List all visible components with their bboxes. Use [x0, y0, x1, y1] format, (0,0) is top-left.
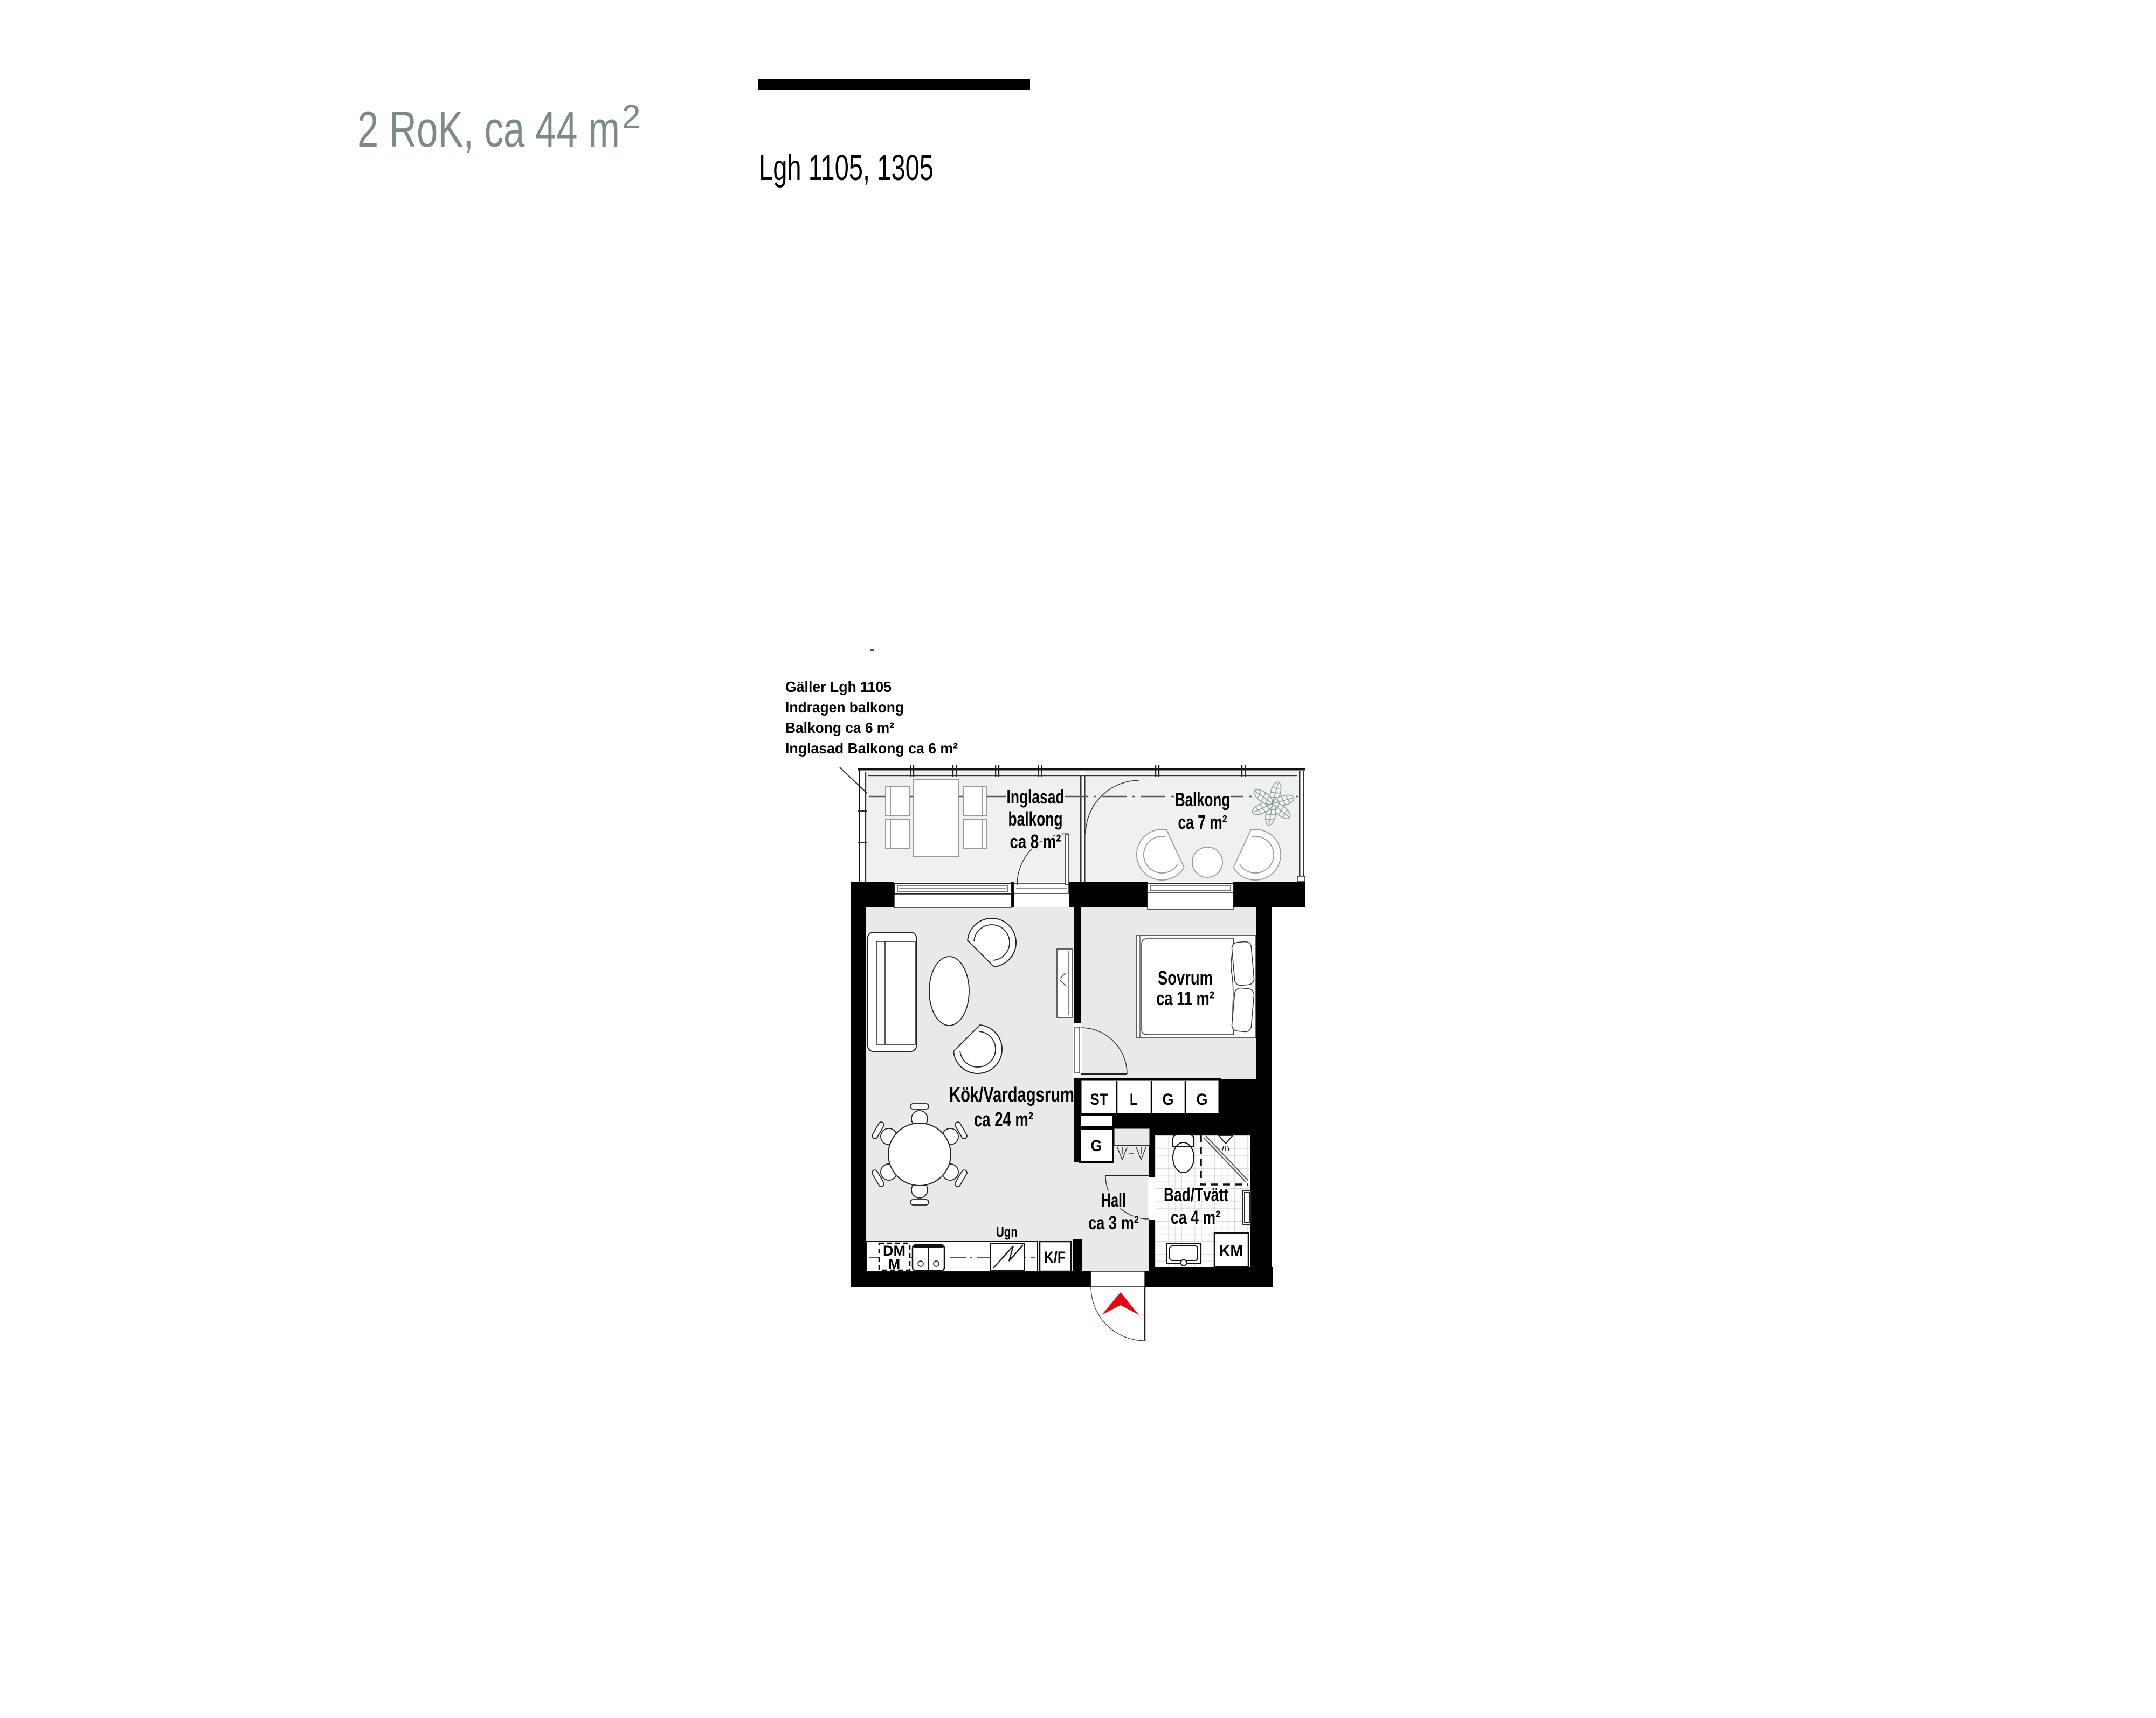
svg-text:Balkong: Balkong — [1175, 788, 1230, 810]
svg-text:K/F: K/F — [1044, 1249, 1066, 1266]
svg-text:ca 8 m²: ca 8 m² — [1010, 830, 1061, 853]
svg-text:ca 3 m²: ca 3 m² — [1088, 1213, 1139, 1234]
svg-text:Sovrum: Sovrum — [1158, 967, 1213, 989]
svg-text:ca 4 m²: ca 4 m² — [1171, 1207, 1220, 1228]
svg-text:ca 11 m²: ca 11 m² — [1156, 987, 1214, 1009]
svg-text:Inglasad: Inglasad — [1007, 786, 1065, 808]
svg-text:G: G — [1091, 1137, 1102, 1155]
svg-text:Gäller Lgh 1105: Gäller Lgh 1105 — [785, 678, 892, 695]
svg-text:Bad/Tvätt: Bad/Tvätt — [1164, 1184, 1228, 1206]
svg-text:ca 24 m²: ca 24 m² — [974, 1109, 1033, 1131]
svg-text:Kök/Vardagsrum: Kök/Vardagsrum — [949, 1084, 1074, 1106]
svg-text:Inglasad Balkong ca 6 m²: Inglasad Balkong ca 6 m² — [785, 740, 958, 757]
svg-text:G: G — [1163, 1091, 1174, 1109]
svg-text:balkong: balkong — [1008, 808, 1063, 830]
svg-text:M: M — [888, 1256, 901, 1272]
svg-text:ST: ST — [1090, 1091, 1108, 1109]
svg-text:G: G — [1197, 1091, 1208, 1109]
svg-text:2: 2 — [622, 99, 640, 136]
svg-text:Indragen balkong: Indragen balkong — [785, 699, 904, 716]
svg-text:ca 7 m²: ca 7 m² — [1178, 811, 1227, 833]
svg-text:L: L — [1130, 1091, 1137, 1109]
svg-text:2 RoK, ca 44 m: 2 RoK, ca 44 m — [357, 101, 620, 157]
svg-text:Balkong ca 6 m²: Balkong ca 6 m² — [785, 719, 894, 736]
svg-text:KM: KM — [1219, 1242, 1243, 1260]
svg-text:Hall: Hall — [1101, 1190, 1126, 1211]
svg-text:Ugn: Ugn — [996, 1224, 1018, 1240]
svg-text:Lgh 1105, 1305: Lgh 1105, 1305 — [759, 148, 934, 188]
